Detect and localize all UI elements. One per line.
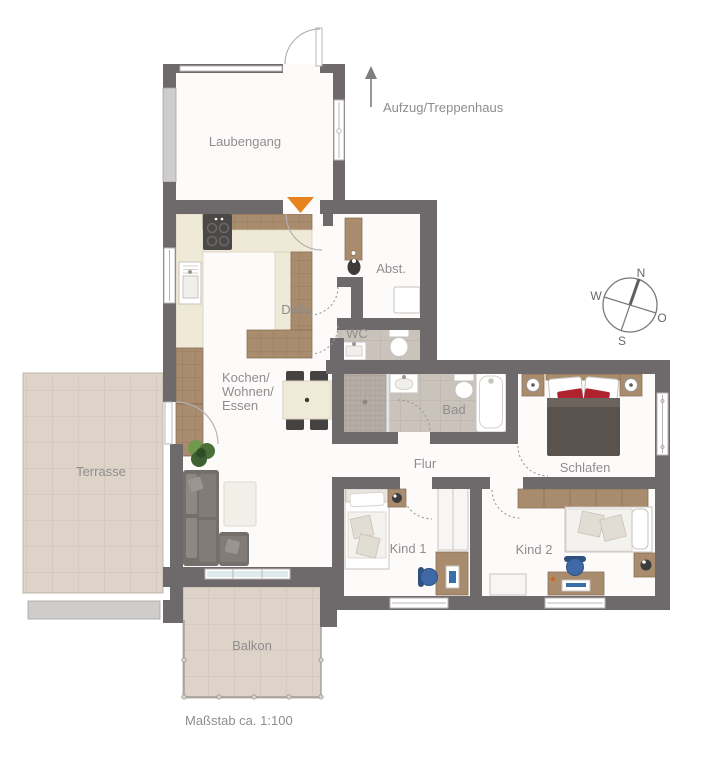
wall-segment: [323, 214, 333, 226]
laubengang-railing: [163, 88, 176, 182]
knob: [221, 218, 224, 221]
faucet: [188, 270, 192, 274]
desk-chair: [421, 569, 438, 586]
bathtub: [476, 372, 506, 432]
bad-toilet-bowl: [455, 382, 473, 399]
wc-sink-basin: [346, 346, 362, 356]
terrasse-area: [23, 373, 163, 593]
window: [390, 598, 448, 608]
faucet: [402, 375, 406, 379]
coffee-table: [224, 482, 256, 526]
bad-toilet-tank: [454, 374, 474, 381]
wall-segment: [470, 489, 482, 596]
passage-floor: [332, 444, 344, 477]
kitchen-sink-icon: [179, 262, 201, 304]
balcony-door-glass: [207, 571, 288, 577]
railing-post: [319, 695, 323, 699]
lamp-dot: [531, 383, 535, 387]
floor-plan-page: N W O S Laubengang Aufzug/Treppenhaus Di…: [0, 0, 707, 757]
label-massstab: Maßstab ca. 1:100: [185, 713, 293, 728]
wall-segment: [163, 64, 176, 88]
label-bad: Bad: [442, 402, 465, 417]
wall-segment: [330, 338, 344, 362]
lamp-icon: [641, 560, 652, 571]
desk-item: [551, 577, 555, 581]
cooktop-icon: [203, 214, 232, 250]
label-wc: WC: [346, 326, 368, 341]
hall-cabinet: [345, 218, 362, 275]
railing-post: [182, 695, 186, 699]
laubengang-door-leaf: [316, 28, 322, 66]
wall-segment: [430, 432, 518, 444]
wall-segment: [432, 477, 490, 489]
pendant-light-icon: [305, 398, 309, 402]
dining-chair: [310, 418, 328, 430]
sofa-seat-cushion: [199, 474, 216, 517]
lamp-icon: [392, 493, 402, 503]
wall-segment: [506, 362, 518, 444]
kitchen-counter-return: [275, 252, 291, 330]
compass-o: O: [657, 311, 666, 325]
compass-s: S: [618, 334, 626, 348]
window: [164, 248, 175, 303]
label-kochen-1: Kochen/: [222, 370, 270, 385]
kitchen-end-block-grid: [247, 330, 312, 358]
door-swing: [285, 29, 320, 64]
terrace-railing-strip: [28, 601, 160, 619]
laubengang-door-opening: [283, 64, 320, 73]
wall-segment: [332, 360, 344, 444]
compass-rose: N W O S: [590, 266, 666, 348]
bed-kind1: [345, 489, 389, 569]
label-terrasse: Terrasse: [76, 464, 126, 479]
window: [545, 598, 605, 608]
window-handle: [337, 129, 341, 133]
wall-segment: [320, 200, 437, 214]
label-kochen-2: Wohnen/: [222, 384, 274, 399]
lamp-dot: [642, 560, 646, 564]
balcony-door: [205, 569, 290, 579]
lamp-dot: [629, 383, 633, 387]
label-schlafen: Schlafen: [560, 460, 611, 475]
lamp-dot: [393, 494, 396, 497]
terrasse-grid: [23, 373, 163, 593]
knob: [215, 218, 218, 221]
label-balkon: Balkon: [232, 638, 272, 653]
railing-post: [217, 695, 221, 699]
desk-chair: [567, 559, 584, 576]
compass-n: N: [637, 266, 646, 280]
label-diele: Diele: [281, 302, 311, 317]
wall-segment: [420, 360, 670, 374]
fixture-detail: [352, 259, 356, 263]
bed-pillow: [350, 492, 385, 507]
wall-segment: [332, 477, 344, 610]
compass-needle-north: [630, 279, 639, 305]
window-post: [661, 399, 664, 402]
railing-post: [182, 658, 186, 662]
wall-segment: [351, 287, 363, 318]
label-flur: Flur: [414, 456, 437, 471]
washing-machine: [394, 287, 420, 313]
elevator-arrow: [365, 66, 377, 107]
floor-plan-drawing: N W O S Laubengang Aufzug/Treppenhaus Di…: [0, 0, 707, 757]
railing-post: [319, 658, 323, 662]
wall-segment: [163, 303, 176, 402]
label-aufzug: Aufzug/Treppenhaus: [383, 100, 504, 115]
wall-segment: [332, 432, 398, 444]
abst-fixtures: [394, 287, 420, 313]
sofa-back-cushion: [186, 518, 197, 558]
window-post: [661, 445, 664, 448]
label-abst: Abst.: [376, 261, 406, 276]
bed-pillow: [632, 509, 648, 549]
window: [657, 393, 668, 455]
label-kochen-3: Essen: [222, 398, 258, 413]
bad-sink-basin: [395, 379, 413, 390]
label-kind1: Kind 1: [390, 541, 427, 556]
arrow-head-icon: [365, 66, 377, 79]
knob: [351, 251, 356, 256]
wall-segment: [337, 277, 363, 287]
label-kind2: Kind 2: [516, 542, 553, 557]
blanket-pattern: [600, 515, 627, 542]
window: [334, 100, 344, 160]
dresser: [490, 574, 526, 595]
wc-toilet-tank: [389, 329, 409, 337]
wall-segment: [523, 477, 655, 489]
sink-basin: [183, 276, 198, 298]
blanket-pattern: [356, 534, 380, 558]
wall-segment: [332, 596, 670, 610]
shower-drain: [363, 400, 368, 405]
wardrobe: [518, 489, 648, 508]
faucet: [352, 342, 356, 346]
compass-w: W: [590, 289, 602, 303]
wall-segment: [163, 182, 176, 202]
bed-kind2: [565, 507, 652, 552]
blanket-pattern: [578, 511, 604, 537]
kitchen-units-return-grid: [291, 252, 312, 330]
bathtub-faucet: [488, 378, 494, 384]
dining-chair: [286, 418, 304, 430]
laptop-screen: [566, 583, 586, 587]
wall-segment: [344, 477, 400, 489]
plant-center: [196, 448, 206, 458]
wall-segment: [163, 200, 283, 214]
laptop-screen: [449, 571, 456, 583]
wall-segment: [420, 200, 437, 360]
sofa-seat-cushion: [199, 520, 216, 562]
window: [180, 66, 282, 71]
wc-toilet-bowl: [390, 338, 408, 357]
label-laubengang: Laubengang: [209, 134, 281, 149]
railing-post: [252, 695, 256, 699]
railing-post: [287, 695, 291, 699]
compass-needle-we: [604, 297, 656, 313]
duvet-fold: [547, 398, 620, 407]
wall-segment: [163, 600, 183, 623]
terrace-door-leaf: [165, 402, 172, 444]
